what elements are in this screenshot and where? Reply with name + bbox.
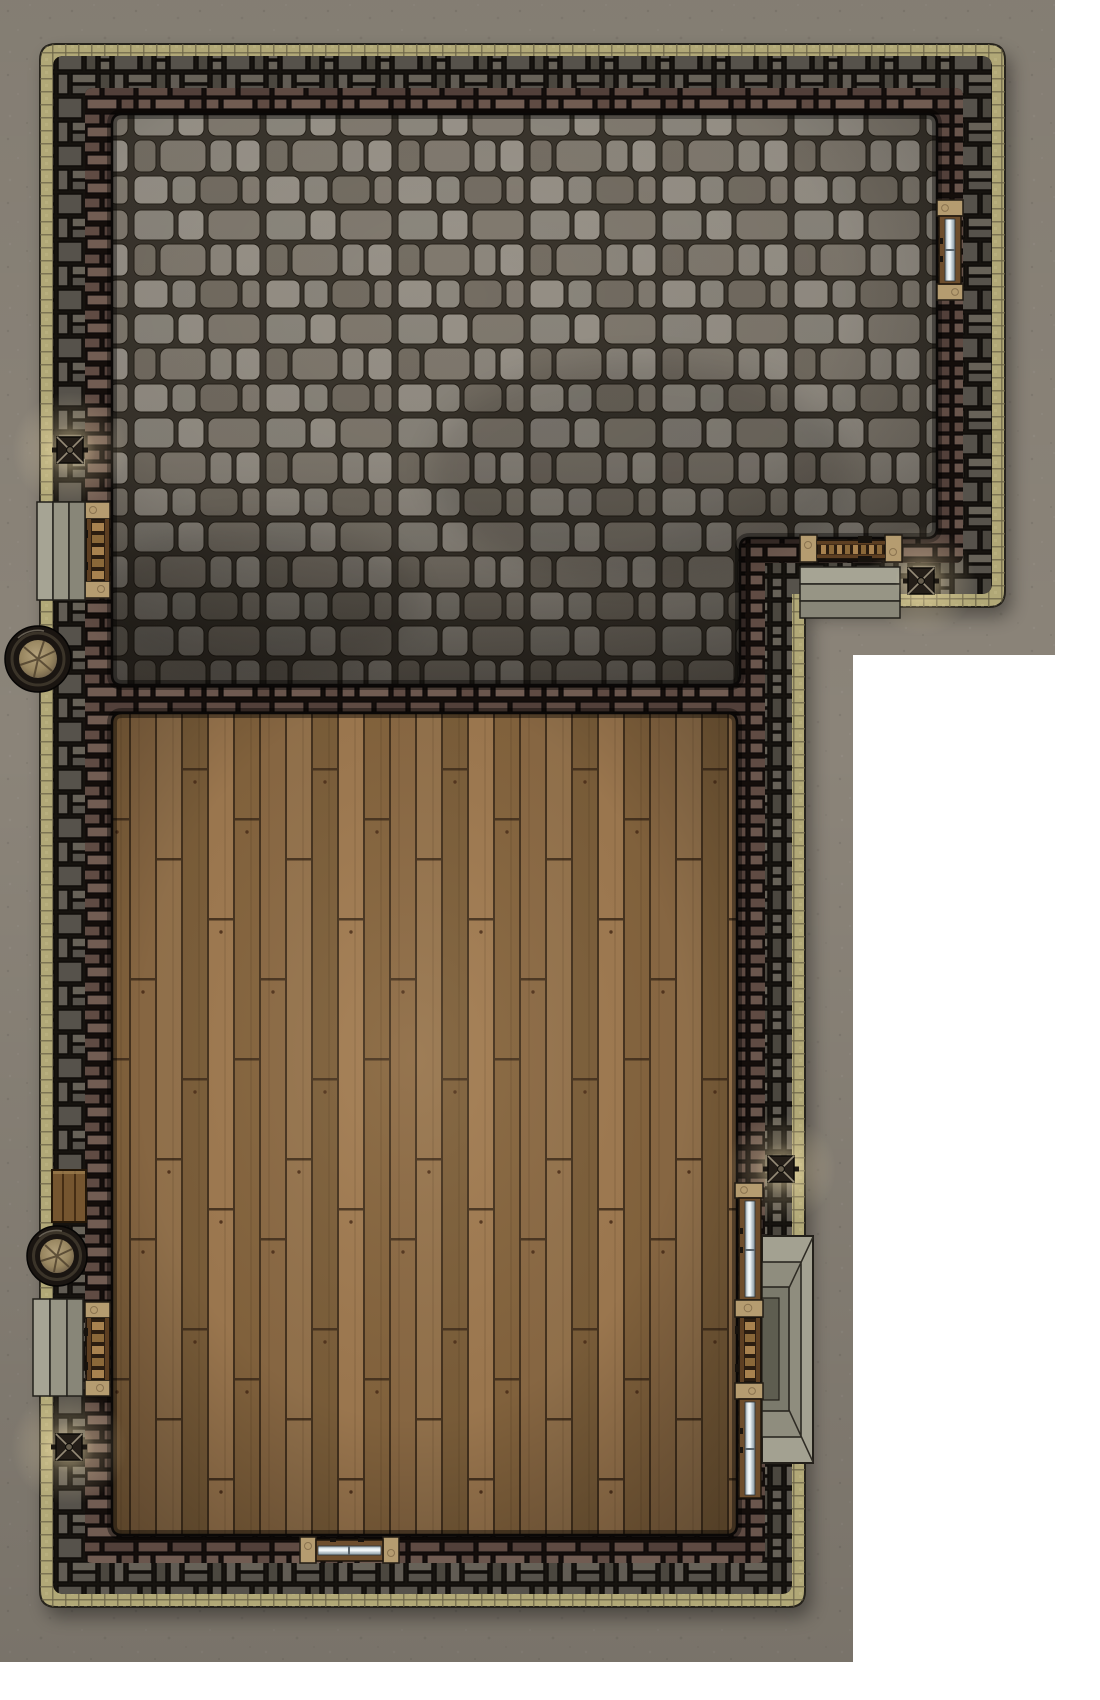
wood-floor-room: Wood-floor hall [112,713,737,1535]
barrel-lower: Barrel - lower west [27,1226,87,1286]
barrel-upper: Barrel - upper west [5,626,71,692]
door-west-wood: Door - wood hall west wall [84,1302,110,1396]
lantern-west-upper: Wall lantern - west upper [44,424,96,476]
lantern-southeast: Wall lantern - southeast [895,555,947,607]
map-canvas: Courtyard ground Building outer trim Out… [0,0,1100,1700]
steps-southeast: Steps - southeast entrance [800,567,900,618]
window-east-upper: Window - wood hall east upper [735,1183,763,1300]
lantern-west-lower: Wall lantern - west lower [43,1421,95,1473]
door-east-wood: Door - wood hall east wall [735,1300,763,1399]
window-east-stone: Window - stone hall east wall [937,200,963,300]
porch-east: Porch steps - east entrance [762,1236,813,1463]
battle-map-svg: Courtyard ground Building outer trim Out… [0,0,1100,1700]
window-south: Window - wood hall south wall [300,1537,399,1563]
steps-west-upper: Steps - west upper entrance [37,502,85,600]
door-west-stone: Door - stone hall west wall [84,502,110,598]
crate-west: Crate - west wall [52,1170,86,1222]
window-east-lower: Window - wood hall east lower [739,1399,761,1498]
steps-west-lower: Steps - west lower entrance [33,1299,83,1396]
